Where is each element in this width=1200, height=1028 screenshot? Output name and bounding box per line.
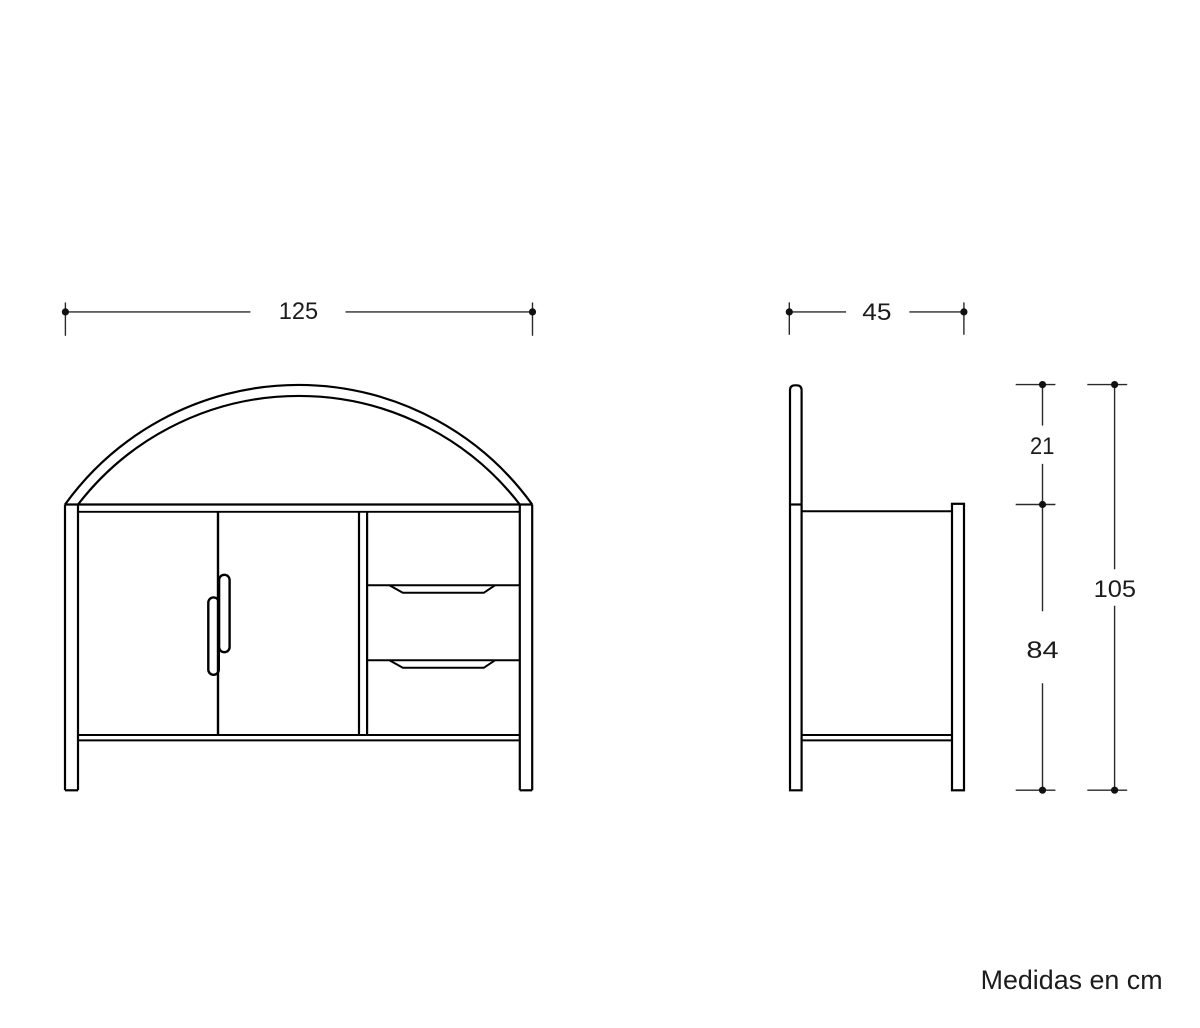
- svg-text:84: 84: [1026, 637, 1058, 664]
- svg-text:45: 45: [862, 299, 891, 326]
- svg-text:Medidas en cm: Medidas en cm: [981, 965, 1163, 995]
- svg-text:125: 125: [279, 298, 318, 325]
- svg-text:21: 21: [1030, 433, 1054, 460]
- svg-text:105: 105: [1094, 576, 1136, 603]
